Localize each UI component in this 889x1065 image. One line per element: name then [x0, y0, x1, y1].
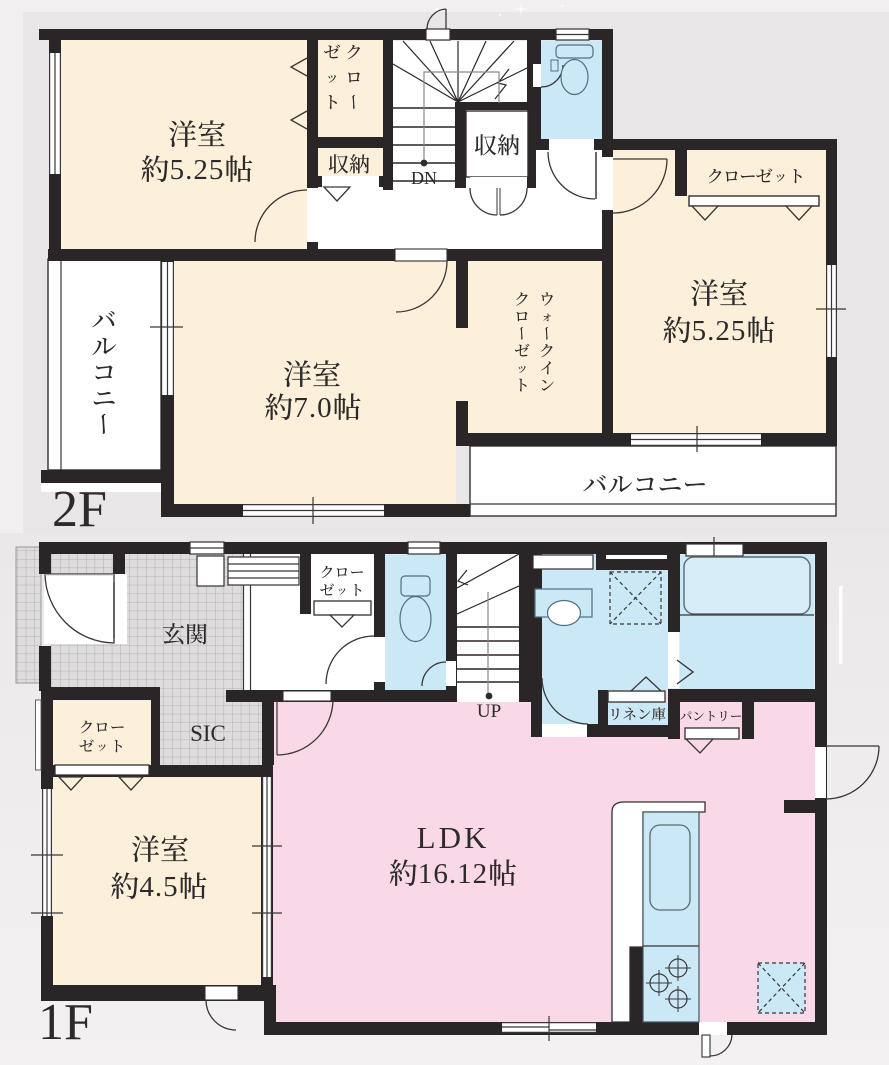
svg-text:1F: 1F	[38, 994, 93, 1051]
svg-text:2F: 2F	[52, 481, 107, 538]
svg-text:UP: UP	[477, 701, 501, 722]
svg-text:5.25: 5.25	[692, 315, 747, 347]
svg-text:SIC: SIC	[190, 721, 226, 746]
svg-text:7.0: 7.0	[293, 392, 332, 424]
svg-text:16.12: 16.12	[418, 858, 488, 890]
svg-text:5.25: 5.25	[170, 154, 225, 186]
svg-text:4.5: 4.5	[139, 871, 178, 903]
svg-text:DN: DN	[411, 168, 437, 188]
svg-text:LDK: LDK	[417, 820, 490, 855]
